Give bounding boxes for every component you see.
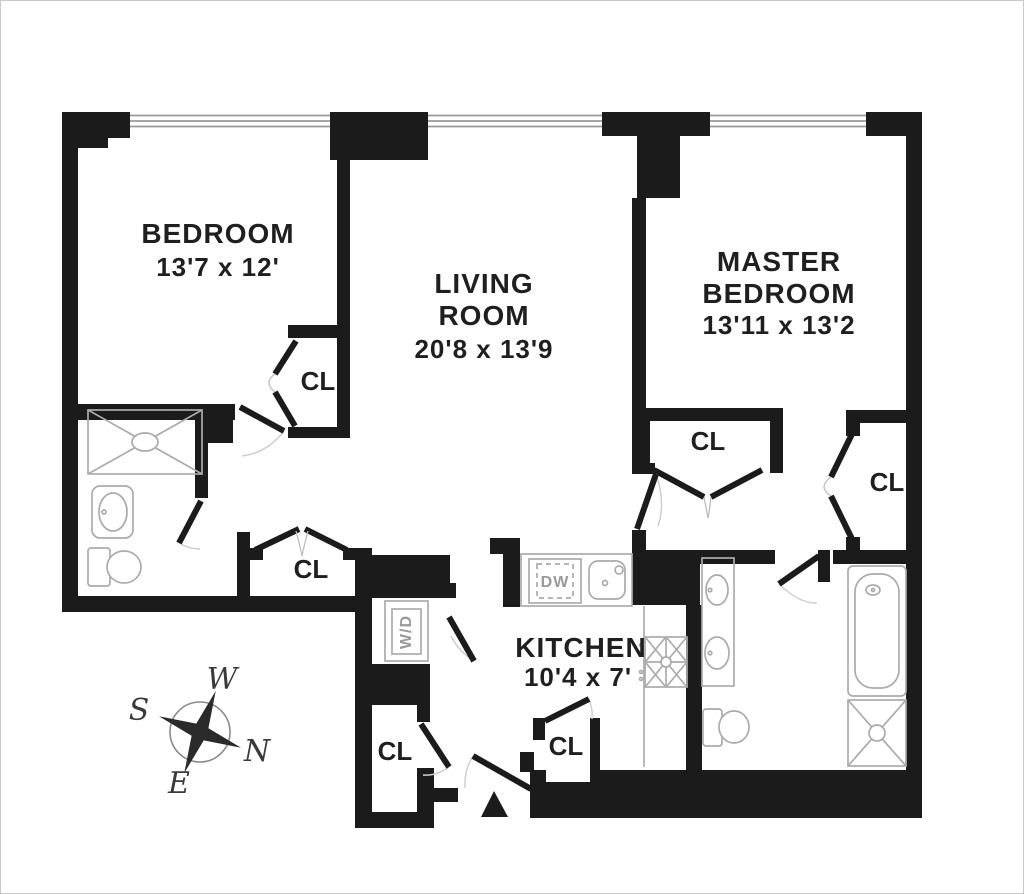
wall-segment (62, 112, 78, 612)
entry-closet-door (421, 724, 449, 767)
wall-segment (533, 718, 545, 740)
master-closet-door (711, 470, 762, 497)
closet-label-master-right: CL (870, 467, 905, 497)
wall-segment (237, 532, 250, 596)
compass-west-label: W (207, 662, 240, 697)
wall-segment (343, 548, 372, 560)
wall-segment (355, 812, 434, 828)
wall-segment (818, 550, 830, 582)
wall-segment (906, 112, 922, 818)
bathroom-door (179, 501, 201, 543)
wall-segment (330, 112, 428, 160)
bifold-mark (269, 374, 275, 392)
wall-segment (846, 537, 860, 550)
master-bedroom-dims: 13'11 x 13'2 (702, 310, 855, 340)
living-room-label-2: ROOM (438, 300, 529, 331)
master-closet2-door (831, 496, 852, 539)
floorplan-drawing: DW W/D (0, 0, 1024, 894)
master-bedroom-label-1: MASTER (717, 246, 841, 277)
wall-segment (637, 136, 680, 198)
wall-segment (846, 423, 860, 436)
window (428, 116, 602, 127)
bedroom-label: BEDROOM (141, 218, 294, 249)
bedroom-dims: 13'7 x 12' (156, 252, 280, 282)
sink (92, 486, 133, 538)
entry-marker-icon (481, 791, 508, 817)
door-swing-arc (465, 756, 473, 788)
labels-layer: BEDROOM 13'7 x 12' LIVING ROOM 20'8 x 13… (141, 218, 904, 766)
door-swing-arc (779, 584, 817, 603)
bathtub (848, 566, 906, 696)
double-vanity (702, 558, 734, 686)
washer-dryer-label: W/D (398, 615, 415, 649)
wall-segment (602, 112, 710, 136)
compass-south-label: S (129, 693, 150, 728)
wall-segment (355, 664, 430, 705)
master-bathroom-door (779, 556, 819, 584)
master-bedroom-door (637, 474, 656, 529)
wall-segment (430, 788, 458, 802)
wall-segment (770, 421, 783, 473)
compass-east-label: E (167, 766, 190, 801)
door-swing-arc (656, 474, 662, 526)
living-room-dims: 20'8 x 13'9 (414, 334, 553, 364)
window (130, 116, 330, 127)
bifold-mark (704, 497, 711, 518)
toilet (88, 548, 141, 586)
wall-segment (62, 596, 372, 612)
closet-label-master-left: CL (691, 426, 726, 456)
living-room-label-1: LIVING (434, 268, 533, 299)
hall-closet-door (255, 529, 299, 550)
compass-north-label: N (243, 734, 272, 769)
door-swing-arc (179, 543, 200, 549)
kitchen-closet-door (545, 699, 589, 721)
master-closet2-door (831, 434, 852, 477)
shower (848, 700, 906, 766)
wall-segment (833, 550, 922, 564)
wall-segment (355, 596, 372, 828)
closet-label-bedroom: CL (301, 366, 336, 396)
closet-label-kitchen: CL (549, 731, 584, 761)
wall-segment (288, 427, 350, 438)
wall-segment (288, 325, 350, 338)
compass-rose-icon: W S N E (129, 662, 272, 801)
wall-segment (337, 158, 350, 430)
closet-label-entry: CL (378, 736, 413, 766)
floorplan-page: DW W/D (0, 0, 1024, 894)
wall-segment (632, 550, 775, 564)
door-swing-arc (242, 431, 284, 456)
wall-segment (637, 408, 783, 421)
windows-layer (130, 116, 866, 127)
wall-segment (637, 421, 650, 473)
washer-dryer: W/D (385, 601, 428, 661)
kitchen-sink (589, 561, 625, 599)
window (710, 116, 866, 127)
bedroom-door (240, 407, 284, 431)
bedroom-closet-door (275, 392, 295, 426)
master-bedroom-label-2: BEDROOM (702, 278, 855, 309)
toilet (703, 709, 749, 746)
wall-segment (355, 555, 450, 598)
wall-segment (503, 540, 520, 607)
bedroom-closet-door (275, 341, 296, 374)
bifold-mark (296, 531, 308, 556)
wall-segment (195, 420, 233, 443)
dishwasher: DW (529, 559, 581, 603)
wall-segment (520, 752, 534, 772)
hall-closet-door (305, 529, 347, 550)
wall-segment (686, 605, 702, 770)
bifold-mark (824, 477, 831, 496)
kitchen-dims: 10'4 x 7' (524, 662, 632, 692)
wall-segment (632, 530, 646, 552)
wall-segment (846, 410, 912, 423)
dishwasher-label: DW (541, 574, 570, 591)
kitchen-label: KITCHEN (515, 632, 646, 663)
wall-segment (417, 705, 430, 722)
wall-segment (590, 718, 600, 770)
closet-label-hall: CL (294, 554, 329, 584)
wall-segment (444, 583, 456, 598)
